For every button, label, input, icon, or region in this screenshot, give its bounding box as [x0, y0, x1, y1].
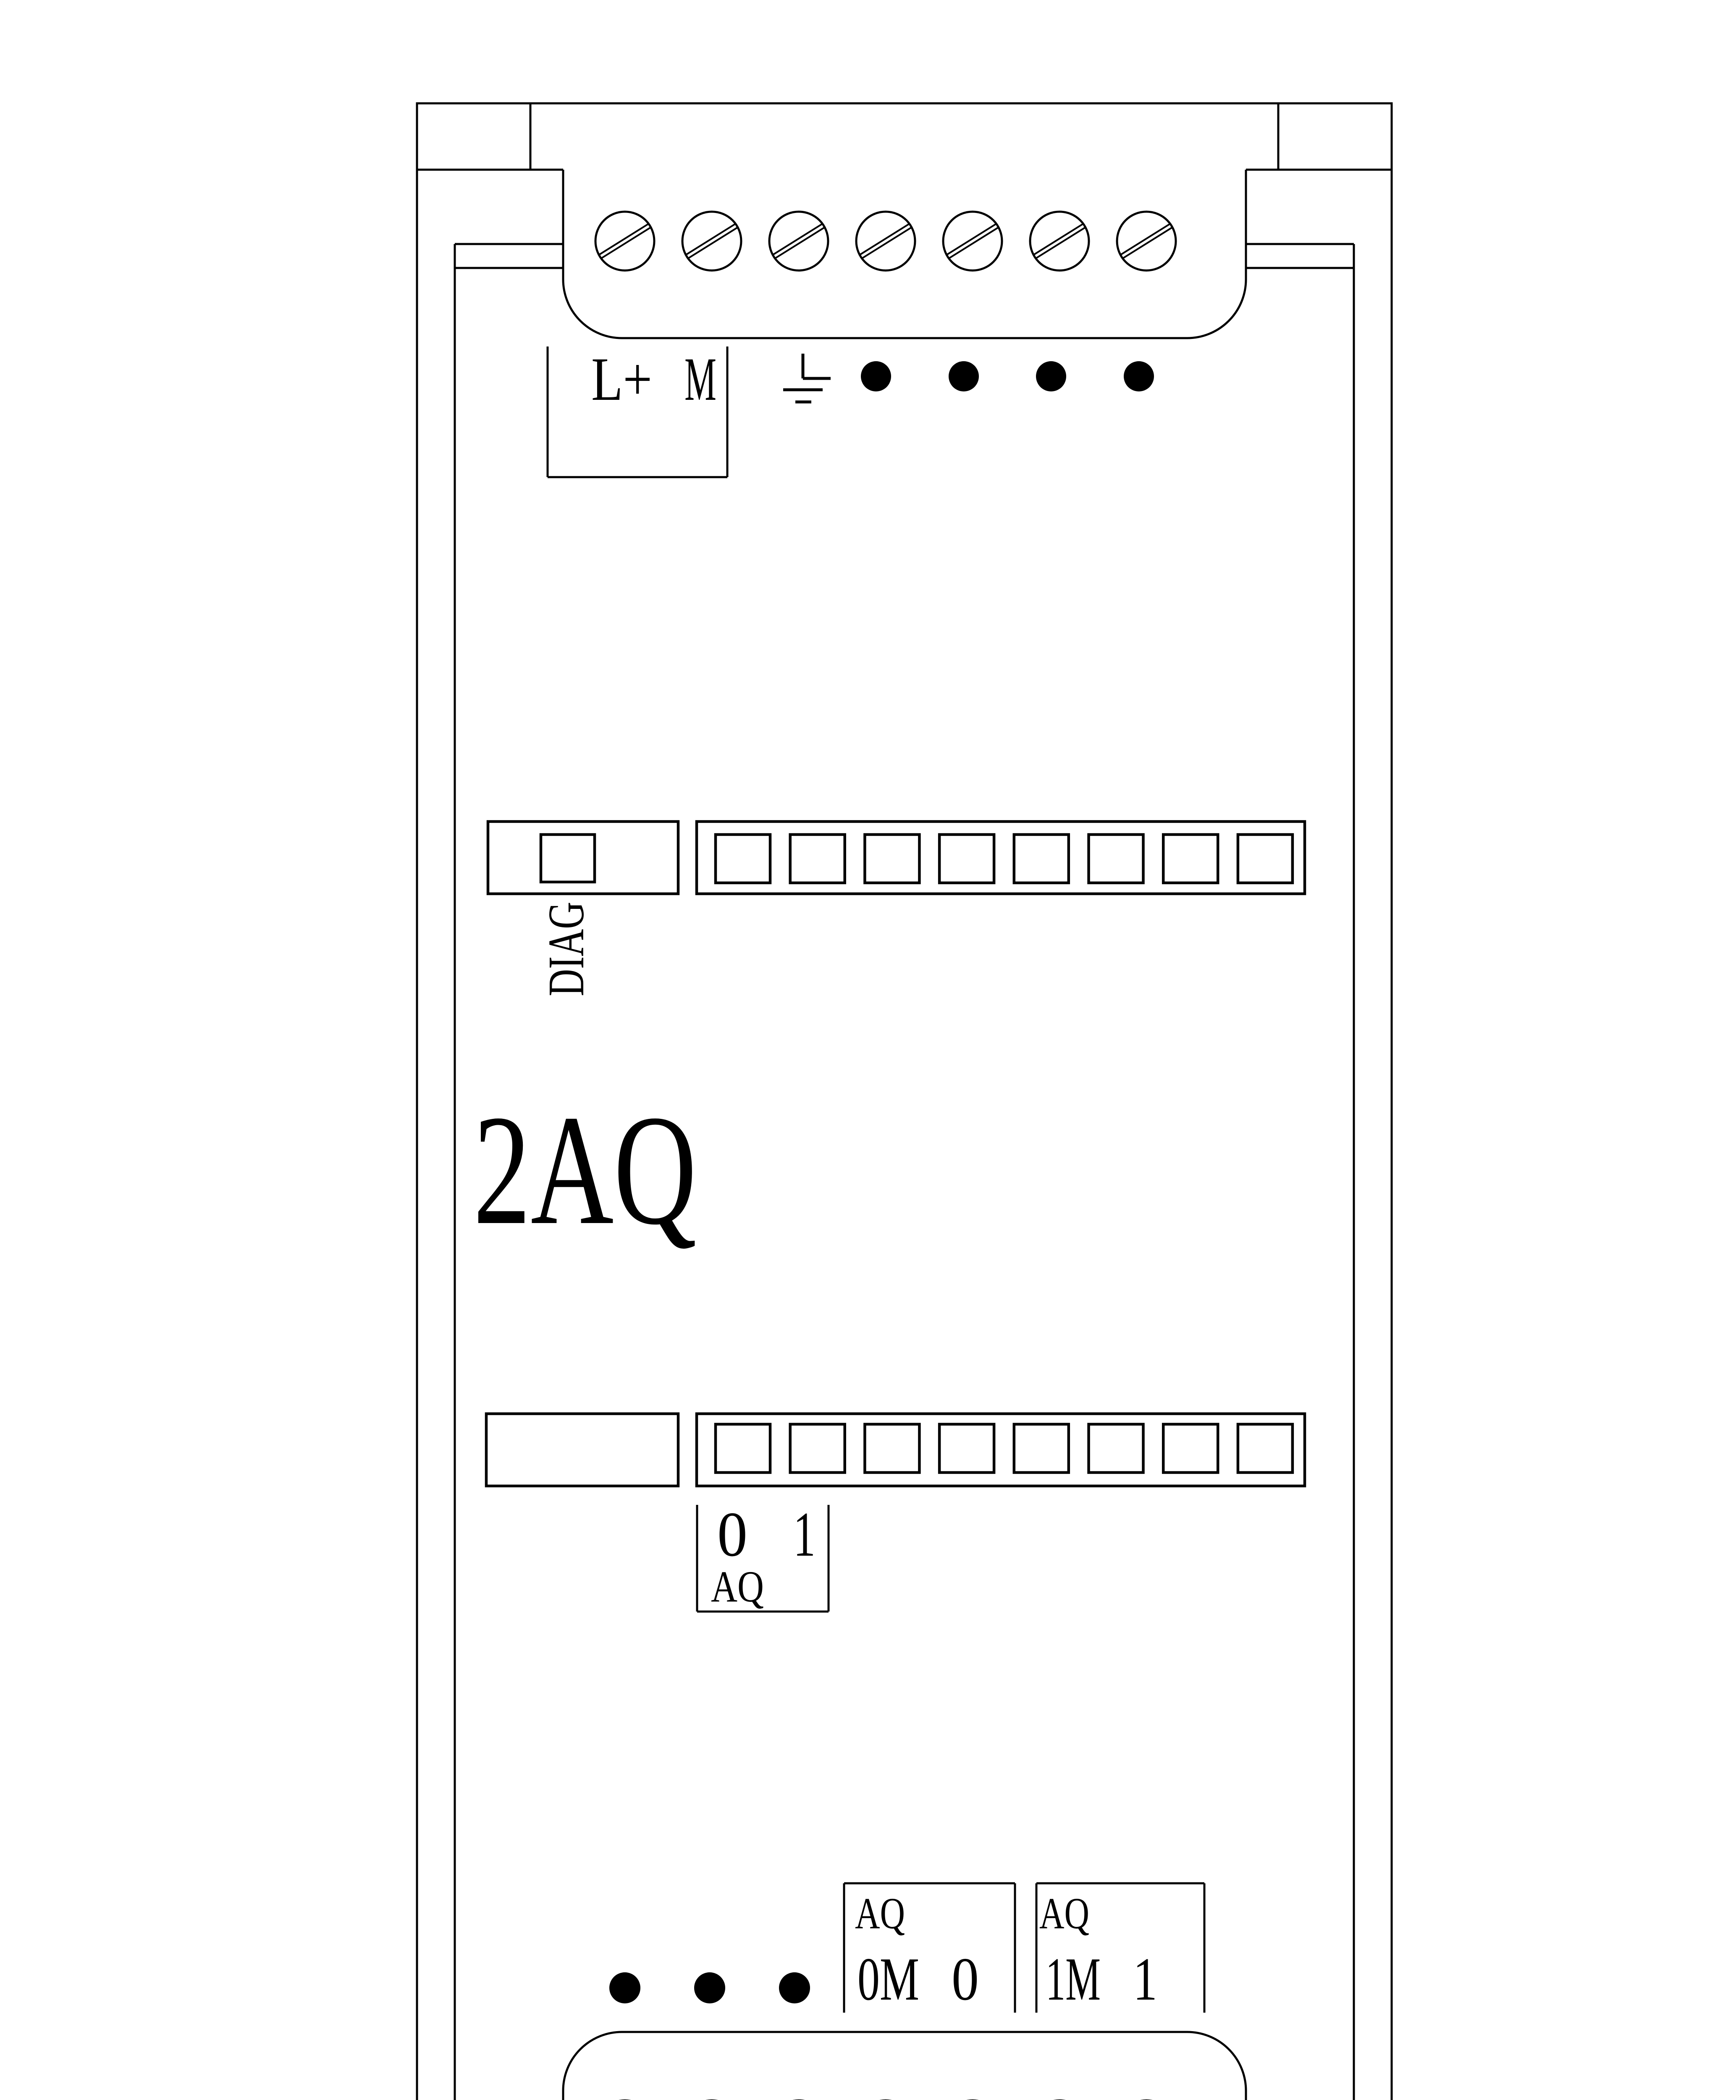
svg-text:M: M	[684, 345, 716, 413]
svg-text:0M: 0M	[858, 1945, 919, 2013]
svg-text:AQ: AQ	[711, 1562, 764, 1611]
svg-text:2AQ: 2AQ	[473, 1083, 697, 1257]
svg-text:L+: L+	[591, 345, 652, 413]
svg-text:0: 0	[717, 1499, 747, 1570]
svg-text:AQ: AQ	[855, 1889, 905, 1938]
svg-text:1: 1	[1133, 1945, 1157, 2013]
svg-text:AQ: AQ	[1039, 1889, 1089, 1938]
svg-text:0: 0	[952, 1945, 979, 2013]
svg-text:1: 1	[793, 1499, 816, 1570]
svg-text:DIAG: DIAG	[538, 902, 595, 996]
svg-text:1M: 1M	[1046, 1945, 1101, 2013]
